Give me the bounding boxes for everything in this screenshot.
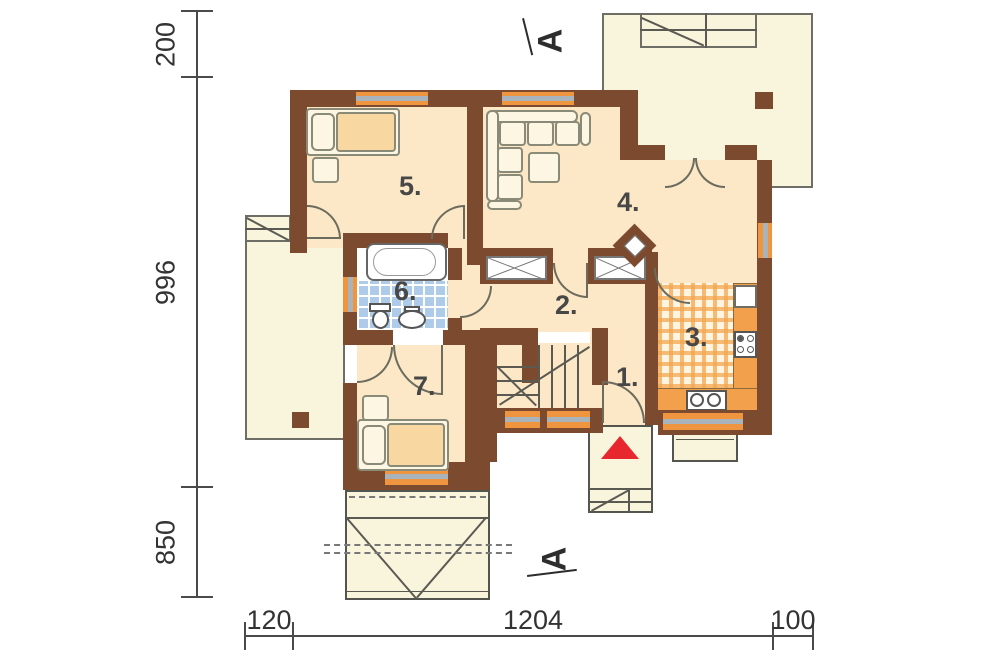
bed-room7-pillow [362, 425, 386, 465]
door-leaf [602, 381, 604, 423]
sofa-armrest [580, 112, 591, 146]
stove-burner-icon [747, 335, 754, 342]
pillar [292, 412, 309, 428]
room-label-6: 6. [394, 278, 417, 305]
room-label-3: 3. [685, 324, 708, 351]
wall-segment [448, 248, 462, 280]
toilet-bowl [372, 310, 389, 329]
dimension-tick [181, 76, 213, 78]
bed-room5-mattress [336, 112, 396, 152]
dimension-value-100: 100 [768, 607, 818, 634]
dimension-value-1204: 1204 [493, 607, 573, 634]
room-label-4: 4. [617, 189, 640, 216]
wall-segment [725, 145, 757, 160]
wall-segment [290, 90, 307, 253]
stove-burner-icon [737, 335, 744, 342]
wall-segment [620, 145, 665, 160]
door-leaf [586, 263, 588, 298]
bathtub-basin [373, 248, 436, 276]
door-leaf [307, 237, 341, 239]
porch-step-line-1 [589, 488, 652, 490]
window-glass [348, 277, 353, 312]
room-label-2: 2. [555, 292, 578, 319]
window-glass [502, 96, 574, 101]
sofa-cushion [499, 121, 526, 146]
floor-plan-canvas: 1. 2. 3. 4. 5. 6. 7. 200 996 850 120 120… [0, 0, 1000, 666]
terrace-stairs-line [640, 29, 757, 31]
dimension-value-120: 120 [244, 607, 294, 634]
window-glass [385, 474, 448, 479]
pillar [755, 92, 773, 109]
washbasin-bowl [398, 310, 426, 329]
dimension-value-850: 850 [153, 503, 180, 583]
dimension-tick [181, 596, 213, 598]
wall-segment [592, 328, 608, 385]
dimension-value-996: 996 [153, 243, 180, 323]
dimension-line-left [196, 11, 198, 598]
entrance-arrow-icon [601, 436, 639, 459]
dimension-line-bottom [245, 635, 813, 637]
section-trace-line-1 [324, 544, 512, 546]
nightstand [362, 395, 389, 421]
coffee-table [528, 152, 560, 183]
fridge [734, 285, 757, 308]
section-marker-top: A [533, 29, 567, 54]
section-marker-bottom: A [537, 547, 571, 572]
window-glass [663, 419, 743, 424]
stove-burner-icon [747, 346, 754, 353]
dimension-tick [181, 486, 213, 488]
garage-inner-bottom-line [347, 591, 488, 592]
kitchen-outside-landing [672, 433, 738, 462]
sofa-armrest [487, 200, 522, 210]
room-label-7: 7. [413, 373, 436, 400]
door-leaf [441, 345, 443, 395]
garage-dashed-edge [349, 496, 486, 498]
garage-beam-line [347, 517, 488, 519]
bed-room7-mattress [387, 423, 445, 467]
wall-segment [757, 160, 772, 425]
sofa-cushion [527, 121, 554, 146]
stair-tread [564, 345, 566, 408]
stair-tread [551, 345, 553, 408]
wall-segment [465, 345, 497, 462]
wall-segment [343, 330, 393, 345]
door-leaf [463, 205, 465, 239]
window-glass [356, 96, 428, 101]
nightstand [312, 157, 339, 183]
terrace-stairs-divider [705, 13, 707, 48]
bed-room5-pillow [311, 113, 335, 151]
porch-step-line-2 [589, 501, 652, 503]
kitchen-sink-basin [707, 393, 721, 407]
sofa-cushion [555, 121, 580, 146]
sofa-cushion [497, 174, 523, 200]
dimension-tick [181, 10, 213, 12]
room-label-1: 1. [616, 364, 639, 391]
wall-segment [522, 328, 538, 383]
stair-tread [497, 366, 538, 368]
kitchen-landing-inner-line [676, 439, 734, 440]
window-glass [763, 223, 768, 258]
room-label-5: 5. [399, 173, 422, 200]
section-trace-line-2 [324, 552, 512, 554]
window-glass [547, 417, 590, 422]
kitchen-sink-basin [690, 393, 704, 407]
sofa-cushion [497, 147, 523, 173]
dimension-value-200: 200 [153, 5, 180, 85]
wall-segment [467, 107, 483, 265]
window-glass [505, 417, 540, 422]
stove-burner-icon [737, 346, 744, 353]
